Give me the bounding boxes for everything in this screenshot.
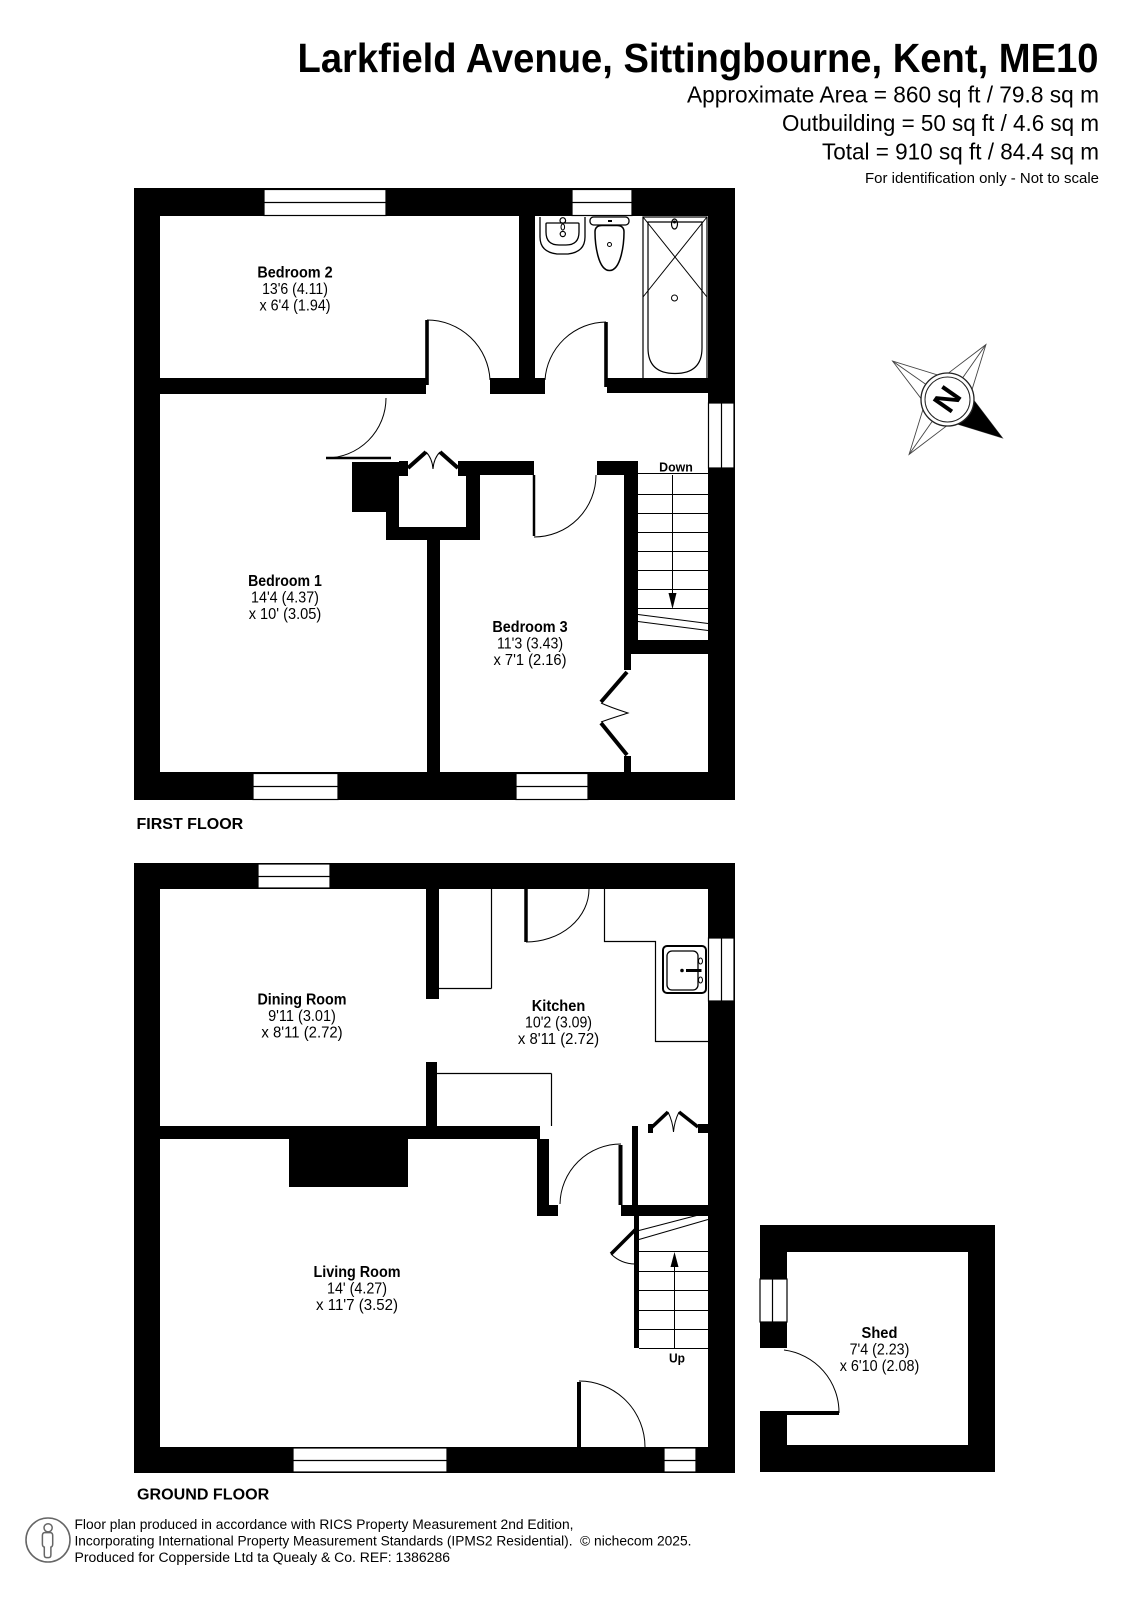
svg-text:Floor plan produced in accorda: Floor plan produced in accordance with R… bbox=[75, 1517, 574, 1532]
svg-text:10'2 (3.09): 10'2 (3.09) bbox=[525, 1015, 592, 1032]
svg-text:11'3 (3.43): 11'3 (3.43) bbox=[497, 636, 563, 653]
svg-text:x 10' (3.05): x 10' (3.05) bbox=[249, 606, 322, 623]
svg-text:Bedroom 1: Bedroom 1 bbox=[248, 573, 322, 590]
svg-text:Down: Down bbox=[659, 460, 693, 475]
svg-text:Living Room: Living Room bbox=[314, 1264, 401, 1281]
svg-text:13'6 (4.11): 13'6 (4.11) bbox=[262, 281, 328, 298]
svg-text:14' (4.27): 14' (4.27) bbox=[327, 1281, 387, 1298]
svg-text:Larkfield Avenue, Sittingbourn: Larkfield Avenue, Sittingbourne, Kent, M… bbox=[298, 35, 1099, 81]
svg-text:x 11'7 (3.52): x 11'7 (3.52) bbox=[316, 1297, 398, 1314]
svg-text:x 8'11 (2.72): x 8'11 (2.72) bbox=[261, 1025, 342, 1042]
svg-text:Approximate Area = 860 sq ft /: Approximate Area = 860 sq ft / 79.8 sq m bbox=[687, 82, 1099, 108]
svg-text:© nichecom 2025.: © nichecom 2025. bbox=[580, 1534, 692, 1549]
svg-text:For identification only - Not: For identification only - Not to scale bbox=[865, 171, 1099, 187]
svg-text:Bedroom 2: Bedroom 2 bbox=[257, 265, 332, 282]
svg-text:Shed: Shed bbox=[862, 1325, 898, 1342]
svg-text:Dining Room: Dining Room bbox=[257, 992, 346, 1009]
svg-text:GROUND FLOOR: GROUND FLOOR bbox=[137, 1487, 270, 1504]
svg-text:Total = 910 sq ft / 84.4 sq m: Total = 910 sq ft / 84.4 sq m bbox=[822, 139, 1099, 165]
svg-text:Produced for Copperside Ltd ta: Produced for Copperside Ltd ta Quealy & … bbox=[75, 1550, 451, 1565]
svg-text:7'4 (2.23): 7'4 (2.23) bbox=[850, 1342, 910, 1359]
svg-text:Incorporating International Pr: Incorporating International Property Mea… bbox=[75, 1534, 573, 1549]
svg-text:x 6'10 (2.08): x 6'10 (2.08) bbox=[840, 1358, 920, 1375]
svg-text:14'4 (4.37): 14'4 (4.37) bbox=[251, 590, 319, 607]
svg-text:Kitchen: Kitchen bbox=[532, 998, 586, 1015]
svg-text:Bedroom 3: Bedroom 3 bbox=[492, 619, 567, 636]
svg-text:x 6'4 (1.94): x 6'4 (1.94) bbox=[259, 298, 330, 315]
svg-text:9'11 (3.01): 9'11 (3.01) bbox=[268, 1008, 336, 1025]
svg-text:FIRST FLOOR: FIRST FLOOR bbox=[137, 816, 244, 833]
svg-text:x 8'11 (2.72): x 8'11 (2.72) bbox=[518, 1031, 599, 1048]
svg-text:Outbuilding = 50 sq ft / 4.6 s: Outbuilding = 50 sq ft / 4.6 sq m bbox=[782, 110, 1099, 136]
svg-text:x 7'1 (2.16): x 7'1 (2.16) bbox=[494, 652, 567, 669]
svg-text:Up: Up bbox=[669, 1351, 685, 1366]
